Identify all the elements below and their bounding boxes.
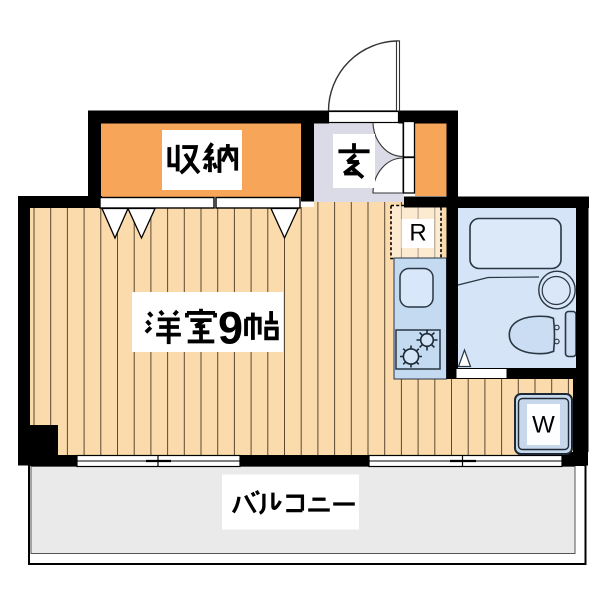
- svg-text:R: R: [409, 220, 426, 247]
- svg-text:W: W: [532, 412, 555, 439]
- svg-text:9: 9: [218, 303, 243, 354]
